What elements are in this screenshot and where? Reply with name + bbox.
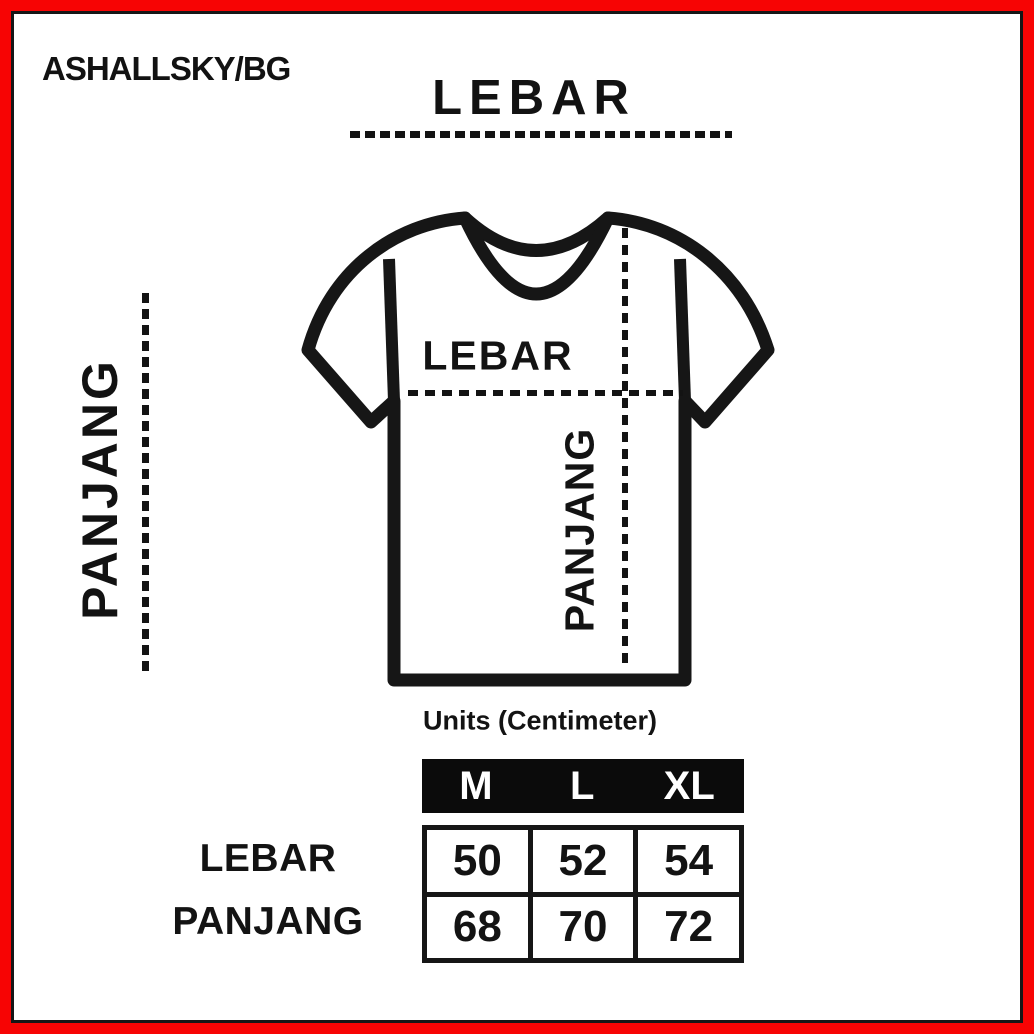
brand-text: ASHALLSKY/BG bbox=[42, 50, 290, 88]
units-note: Units (Centimeter) bbox=[423, 706, 657, 737]
size-column-l: L bbox=[530, 764, 635, 809]
width-row-label: LEBAR bbox=[148, 839, 388, 879]
shirt-width-label: LEBAR bbox=[422, 333, 573, 380]
length-value-l: 70 bbox=[533, 897, 634, 959]
length-value-xl: 72 bbox=[638, 897, 739, 959]
left-sleeve-seam bbox=[389, 259, 394, 401]
size-chart-page: ASHALLSKY/BG LEBAR PANJANG LEBAR PANJANG… bbox=[0, 0, 1034, 1034]
length-value-m: 68 bbox=[427, 897, 528, 959]
top-width-title: LEBAR bbox=[432, 70, 636, 126]
right-sleeve-seam bbox=[680, 259, 685, 401]
side-length-title: PANJANG bbox=[71, 358, 129, 620]
tshirt-illustration bbox=[305, 195, 775, 695]
top-width-dashed-line bbox=[350, 131, 732, 138]
width-value-xl: 54 bbox=[638, 830, 739, 892]
shirt-length-label: PANJANG bbox=[557, 428, 604, 632]
size-column-m: M bbox=[422, 764, 530, 809]
tshirt-outline bbox=[308, 218, 768, 680]
size-table-header: M L XL bbox=[422, 759, 744, 813]
side-length-dashed-line bbox=[142, 293, 149, 673]
size-table-body: 50 52 54 68 70 72 bbox=[422, 825, 744, 963]
length-row-label: PANJANG bbox=[148, 902, 388, 942]
size-column-xl: XL bbox=[635, 764, 744, 809]
width-value-m: 50 bbox=[427, 830, 528, 892]
width-value-l: 52 bbox=[533, 830, 634, 892]
